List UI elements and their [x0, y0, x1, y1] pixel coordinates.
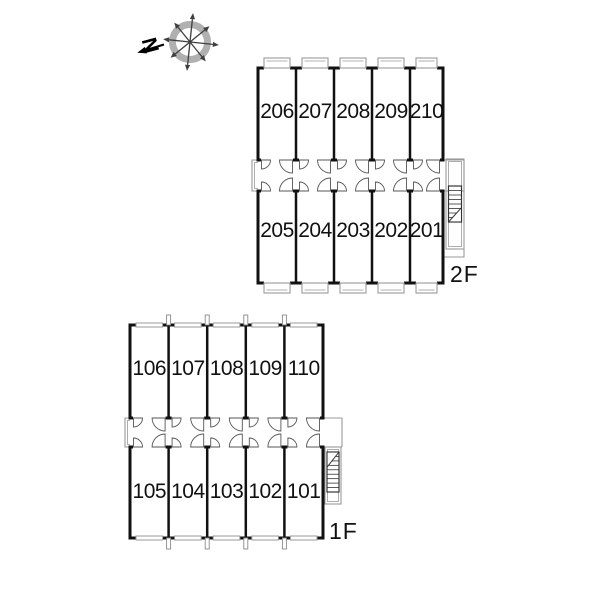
floor-plan-page: 2062072082092102052042032022011061071081… — [0, 0, 600, 600]
room-label-208: 208 — [336, 100, 370, 123]
room-label-109: 109 — [248, 357, 282, 380]
floor-plan-drawing: 2062072082092102052042032022011061071081… — [0, 0, 600, 600]
room-label-110: 110 — [288, 357, 320, 380]
window — [136, 536, 163, 540]
room-label-104: 104 — [171, 480, 205, 503]
window — [175, 536, 202, 540]
door-arc-small — [134, 418, 143, 427]
wall-stub-top — [205, 315, 209, 325]
door-arc-small — [376, 182, 385, 191]
door-arc-small — [288, 418, 297, 427]
window — [175, 323, 202, 327]
bay-window — [340, 58, 366, 68]
window — [213, 323, 240, 327]
door-arc-large — [394, 178, 407, 191]
corridor-outline-left-inner — [255, 163, 259, 189]
room-label-207: 207 — [298, 100, 332, 123]
door-arc-large — [191, 418, 204, 431]
door-arc-small — [262, 182, 271, 191]
room-label-203: 203 — [336, 219, 370, 242]
window — [290, 536, 317, 540]
door-arc-small — [172, 418, 181, 427]
door-arc-small — [249, 418, 258, 427]
door-arc-large — [268, 418, 281, 431]
bay-window — [264, 283, 290, 293]
bay-window — [302, 58, 328, 68]
room-label-210: 210 — [410, 100, 444, 123]
door-arc-small — [414, 160, 423, 169]
door-arc-small — [338, 182, 347, 191]
wall-stub-bottom — [205, 538, 209, 549]
door-arc-large — [229, 434, 242, 447]
compass-arrowhead — [184, 65, 190, 72]
door-arc-large — [307, 418, 320, 431]
room-label-209: 209 — [374, 100, 408, 123]
window — [290, 323, 317, 327]
room-label-101: 101 — [287, 480, 321, 503]
room-label-202: 202 — [374, 219, 408, 242]
door-arc-small — [300, 182, 309, 191]
door-arc-large — [318, 160, 331, 173]
floor-label-2f: 2F — [450, 261, 479, 288]
bay-window — [264, 58, 290, 68]
door-arc-large — [427, 160, 440, 173]
compass-star — [160, 10, 222, 74]
wall-stub-top — [244, 315, 248, 325]
door-arc-small — [288, 438, 297, 447]
door-arc-small — [211, 438, 220, 447]
door-arc-large — [307, 434, 320, 447]
floor-label-1f: 1F — [329, 518, 358, 545]
door-arc-small — [414, 182, 423, 191]
room-label-205: 205 — [260, 219, 294, 242]
floor-1f: 106107108109110105104103102101 — [125, 315, 342, 549]
door-arc-large — [394, 160, 407, 173]
window — [213, 536, 240, 540]
door-arc-large — [191, 434, 204, 447]
bay-window — [302, 283, 328, 293]
door-arc-large — [356, 160, 369, 173]
door-arc-small — [172, 438, 181, 447]
bay-window — [416, 58, 437, 68]
bay-window — [378, 283, 404, 293]
door-arc-large — [229, 418, 242, 431]
room-label-103: 103 — [210, 480, 244, 503]
compass-arrowhead — [163, 37, 170, 43]
corridor-outline-left — [252, 160, 258, 191]
room-label-204: 204 — [298, 219, 332, 242]
corridor-outline-left-inner — [128, 421, 131, 445]
door-arc-large — [268, 434, 281, 447]
window — [136, 323, 163, 327]
room-label-105: 105 — [133, 480, 167, 503]
door-arc-large — [427, 178, 440, 191]
door-arc-small — [300, 160, 309, 169]
wall-stub-top — [282, 315, 286, 325]
wall-stub-bottom — [244, 538, 248, 549]
door-arc-large — [280, 160, 293, 173]
wall-stub-top — [167, 315, 171, 325]
door-arc-small — [376, 160, 385, 169]
door-arc-large — [356, 178, 369, 191]
wall-stub-bottom — [167, 538, 171, 549]
bay-window — [378, 58, 404, 68]
door-arc-small — [134, 438, 143, 447]
floor-2f: 206207208209210205204203202201 — [252, 58, 464, 293]
door-arc-small — [338, 160, 347, 169]
corridor-outline-right — [323, 418, 342, 447]
wall-stub-bottom — [282, 538, 286, 549]
door-arc-large — [280, 178, 293, 191]
window — [252, 323, 279, 327]
room-label-102: 102 — [248, 480, 282, 503]
bay-window — [340, 283, 366, 293]
room-label-206: 206 — [260, 100, 294, 123]
door-arc-large — [152, 434, 165, 447]
door-arc-small — [262, 160, 271, 169]
compass-arrowhead — [213, 42, 220, 48]
room-label-108: 108 — [210, 357, 244, 380]
compass-arrowhead — [190, 13, 196, 20]
door-arc-small — [249, 438, 258, 447]
window — [252, 536, 279, 540]
door-arc-large — [318, 178, 331, 191]
stair-landing-line — [444, 249, 464, 257]
room-label-201: 201 — [410, 219, 444, 242]
room-label-106: 106 — [133, 357, 167, 380]
room-label-107: 107 — [171, 357, 205, 380]
door-arc-large — [152, 418, 165, 431]
bay-window — [416, 283, 437, 293]
door-arc-small — [211, 418, 220, 427]
